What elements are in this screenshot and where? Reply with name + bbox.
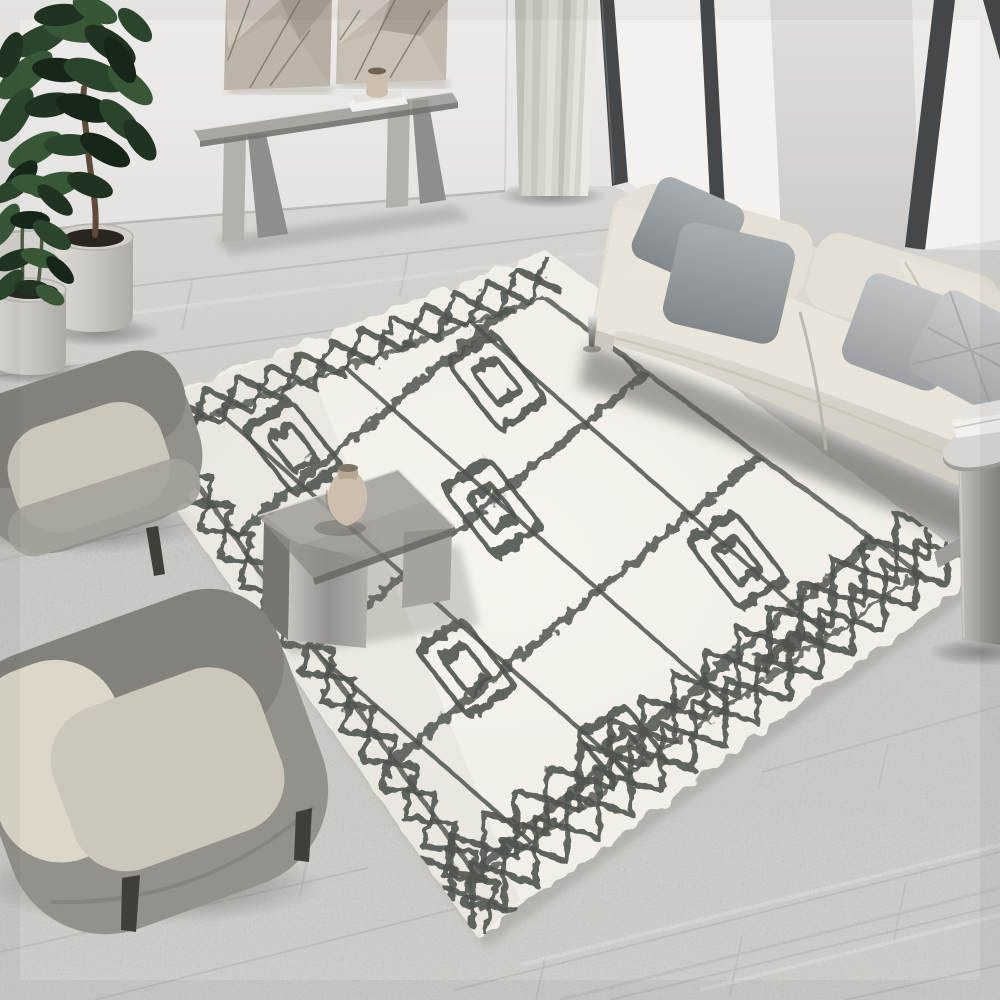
- console-leg: [222, 137, 246, 242]
- big-plant-pot: [55, 237, 133, 332]
- wall-pillar: [770, 0, 920, 258]
- armchair-2-leg-right: [294, 808, 312, 862]
- console-vase-mouth: [368, 68, 386, 75]
- table-vase-mouth: [338, 464, 358, 472]
- living-room-photo: [0, 0, 1000, 1000]
- scene-svg: [0, 0, 1000, 1000]
